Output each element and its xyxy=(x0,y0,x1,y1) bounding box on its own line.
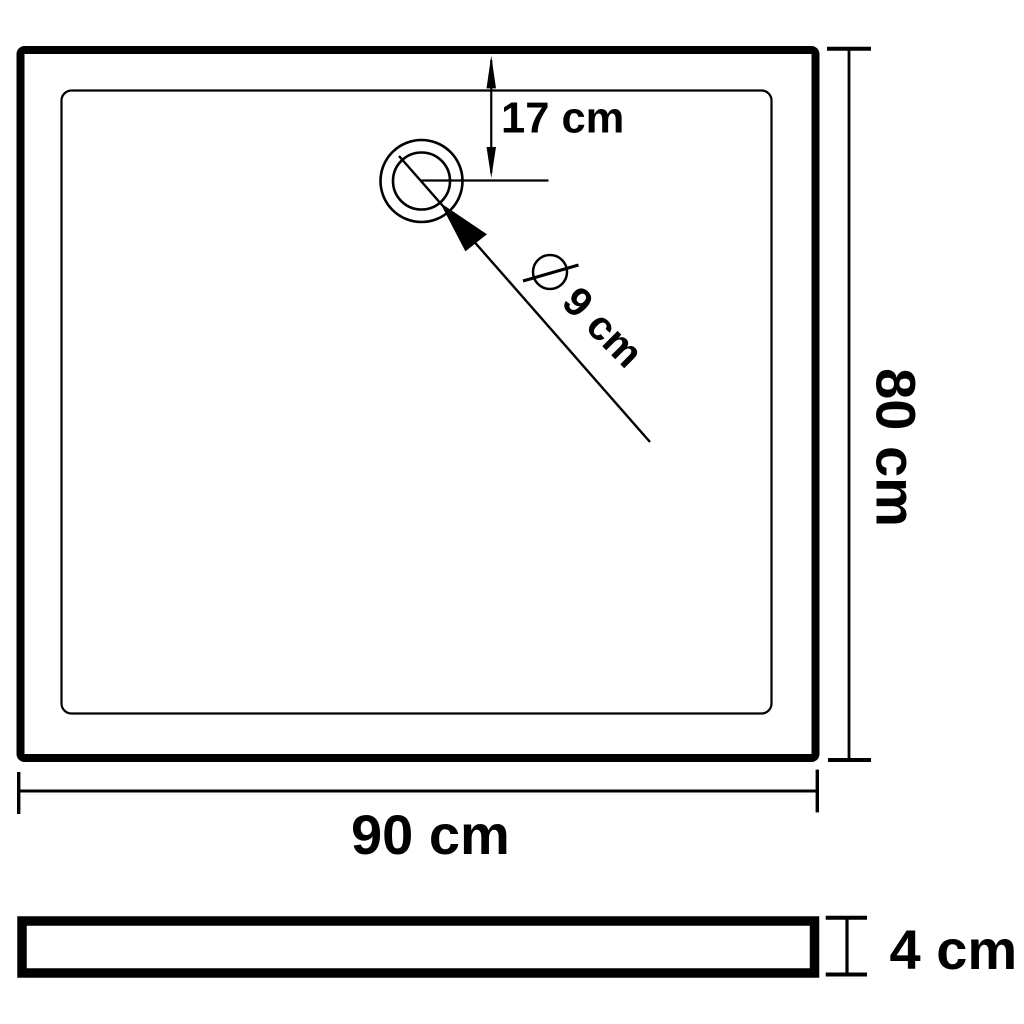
svg-text:17 cm: 17 cm xyxy=(501,95,624,143)
svg-text:90 cm: 90 cm xyxy=(351,803,510,866)
svg-text:80 cm: 80 cm xyxy=(865,368,928,527)
svg-text:4 cm: 4 cm xyxy=(890,918,1018,981)
